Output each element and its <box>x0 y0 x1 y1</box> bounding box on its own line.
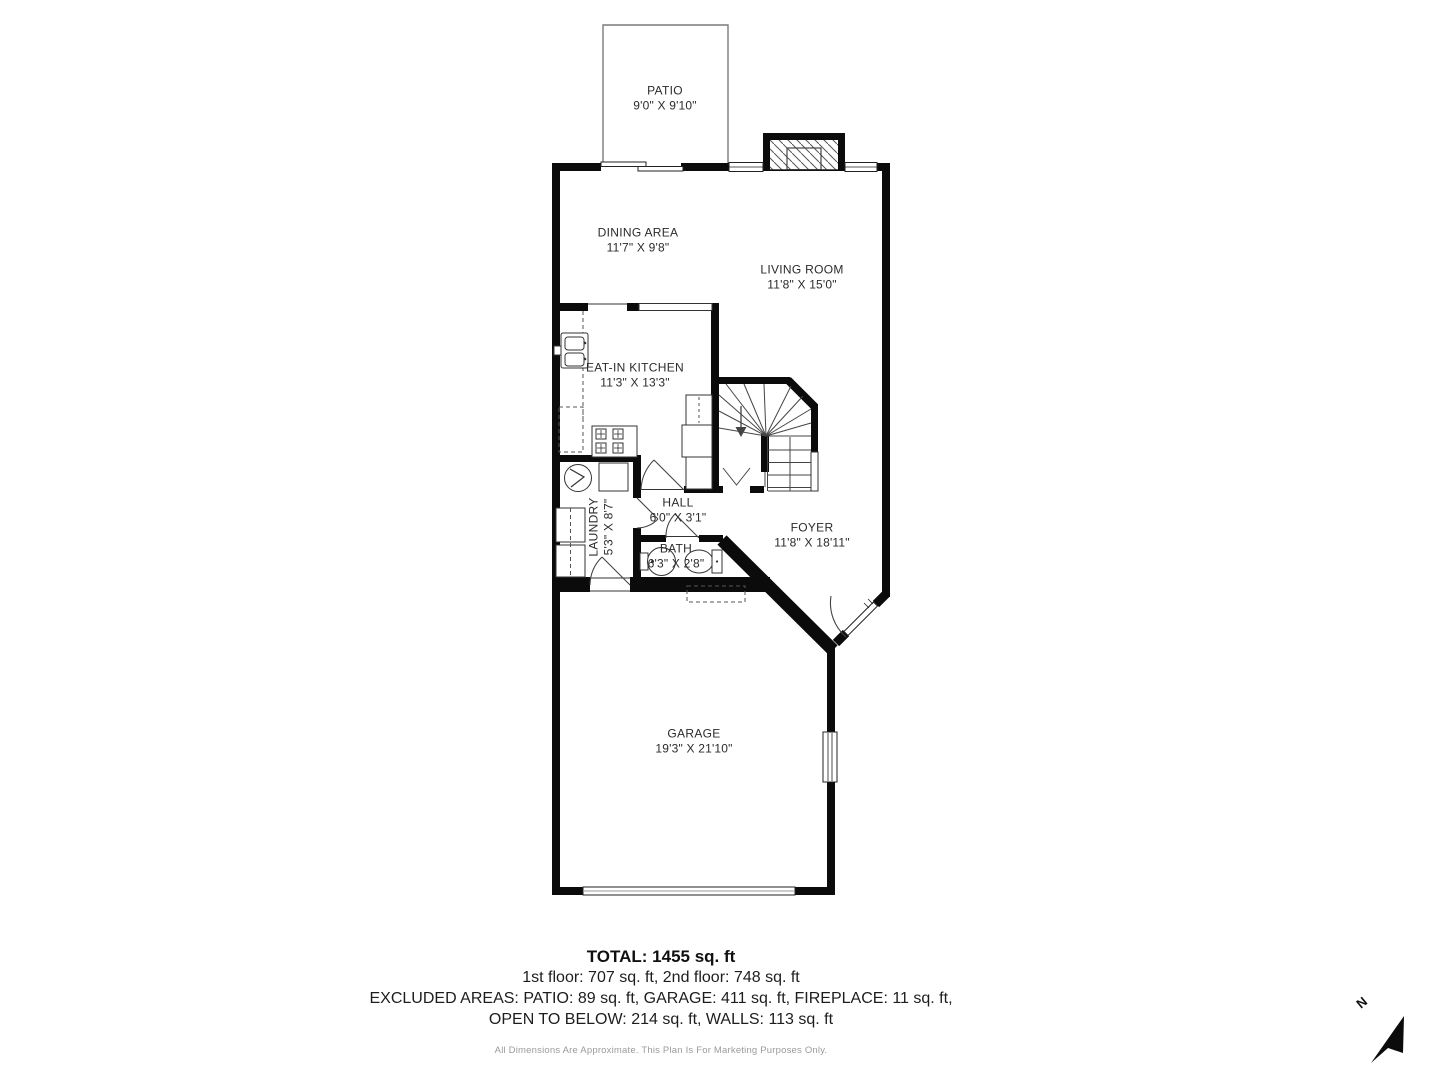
room-label-kitchen: EAT-IN KITCHEN 11'3" X 13'3" <box>586 361 684 390</box>
room-label-hall: HALL 6'0" X 3'1" <box>650 496 707 525</box>
area-summary: TOTAL: 1455 sq. ft 1st floor: 707 sq. ft… <box>161 946 1161 1056</box>
floor-areas: 1st floor: 707 sq. ft, 2nd floor: 748 sq… <box>161 967 1161 988</box>
room-name: PATIO <box>633 84 697 99</box>
understair-closet-door <box>723 468 750 485</box>
room-dims: 6'0" X 3'1" <box>650 510 707 525</box>
floor-plan-svg <box>0 0 1440 1080</box>
dryer <box>599 463 628 491</box>
room-label-dining: DINING AREA 11'7" X 9'8" <box>598 226 679 255</box>
room-dims: 11'8" X 15'0" <box>760 277 843 292</box>
room-name: EAT-IN KITCHEN <box>586 361 684 376</box>
room-label-bath: BATH 6'3" X 2'8" <box>648 542 705 571</box>
room-label-foyer: FOYER 11'8" X 18'11" <box>774 521 850 550</box>
room-dims: 5'3" X 8'7" <box>601 497 616 556</box>
room-dims: 11'7" X 9'8" <box>598 240 679 255</box>
room-label-garage: GARAGE 19'3" X 21'10" <box>655 727 732 756</box>
stair-rail <box>811 452 818 491</box>
fireplace <box>763 133 845 171</box>
room-name: HALL <box>650 496 707 511</box>
room-name: LIVING ROOM <box>760 263 843 278</box>
room-name: LAUNDRY <box>587 497 602 556</box>
floor-plan-page: PATIO 9'0" X 9'10" DINING AREA 11'7" X 9… <box>0 0 1440 1080</box>
washer <box>565 465 592 492</box>
room-dims: 19'3" X 21'10" <box>655 741 732 756</box>
room-dims: 11'3" X 13'3" <box>586 375 684 390</box>
excluded-areas-line1: EXCLUDED AREAS: PATIO: 89 sq. ft, GARAGE… <box>161 988 1161 1009</box>
room-name: GARAGE <box>655 727 732 742</box>
room-label-laundry: LAUNDRY 5'3" X 8'7" <box>587 497 616 556</box>
total-area: TOTAL: 1455 sq. ft <box>161 946 1161 967</box>
room-label-patio: PATIO 9'0" X 9'10" <box>633 84 697 113</box>
room-name: BATH <box>648 542 705 557</box>
room-dims: 11'8" X 18'11" <box>774 535 850 550</box>
room-name: DINING AREA <box>598 226 679 241</box>
excluded-areas-line2: OPEN TO BELOW: 214 sq. ft, WALLS: 113 sq… <box>161 1009 1161 1030</box>
north-arrow-icon <box>1371 1016 1404 1063</box>
room-label-living: LIVING ROOM 11'8" X 15'0" <box>760 263 843 292</box>
room-dims: 9'0" X 9'10" <box>633 98 697 113</box>
room-name: FOYER <box>774 521 850 536</box>
front-door <box>844 599 878 636</box>
sliding-door <box>601 162 683 171</box>
windows <box>729 163 877 783</box>
room-dims: 6'3" X 2'8" <box>648 556 705 571</box>
disclaimer: All Dimensions Are Approximate. This Pla… <box>161 1045 1161 1056</box>
garage-door <box>583 887 795 895</box>
